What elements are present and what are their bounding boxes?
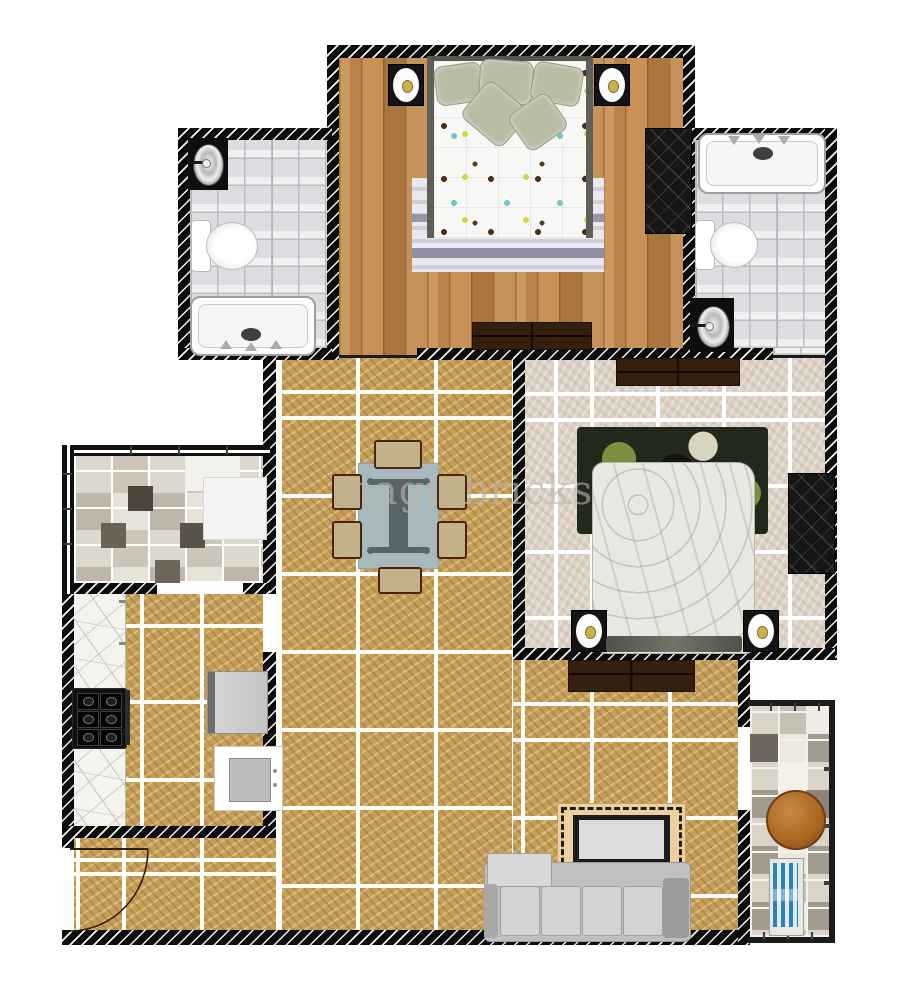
sofa-chaise-back [487,853,552,887]
entrance-door-swing [60,840,160,940]
tub-faucet-handle [728,136,740,145]
dining-chair [374,440,422,469]
tub-faucet-spout [753,135,765,144]
tub-faucet-handle [270,340,282,349]
kitchen-sink-unit [214,746,283,811]
sink-basin [229,758,271,802]
sofa-cushion [500,886,540,936]
balcony-wall-bottom [748,937,835,943]
sink-tap [273,769,277,773]
wall-utility-right [263,348,276,594]
dresser [472,322,592,350]
bedroom2-top-edge [773,355,827,358]
watermark: magicbricks [335,468,593,514]
console-table [616,358,740,386]
tub-faucet-spout [245,342,257,351]
railing-post [794,703,796,711]
bathroom-2-floor-strip [773,348,825,355]
sink-tap [273,783,277,787]
railing-post [824,881,830,885]
wall-bedroom1-left [327,45,339,360]
faucet-dot [705,322,714,331]
window-mullion [63,508,72,510]
dining-chair [378,567,422,594]
toilet-bowl [710,222,758,268]
mosaic-dark-tile [101,523,126,548]
wall-lamp [571,610,607,652]
wall-lamp [743,610,779,652]
tub-drain [241,328,261,341]
wall-utility-bottom-left [62,583,157,594]
mosaic-dark-tile [128,486,153,511]
utility-counter [203,477,267,540]
railing-post [763,932,765,940]
bathtub [190,296,316,356]
wash-basin [188,138,228,190]
refrigerator [207,671,268,734]
sofa-armrest-right [663,878,689,938]
balcony-light-tile [778,762,806,790]
burner [77,729,99,746]
sideboard [568,660,695,692]
railing-post [811,932,813,940]
window-mullion [178,446,180,455]
burner [77,693,99,710]
wash-basin [690,298,734,352]
wall-kitchen-bottom [62,826,276,838]
table-knob [423,547,430,554]
utility-window-top [62,445,270,456]
tub-faucet-handle [220,340,232,349]
burner [100,693,122,710]
toilet-bowl [206,222,258,270]
mosaic-dark-tile [155,560,180,583]
bed-2-quilt [592,462,755,654]
railing-post [770,703,772,711]
railing-post [818,703,820,711]
sofa-armrest-left [484,884,498,938]
sofa-cushion [582,886,622,936]
wall-outer-right [825,128,837,660]
dining-chair [332,521,362,559]
floor-plan: magicbricks [0,0,900,1000]
wall-living-right-upper [738,660,750,727]
wall-living-right-lower [738,810,750,945]
counter-handle [119,642,126,645]
door-swing-arc [70,849,148,931]
sofa-cushion [623,886,663,936]
burner [77,711,99,728]
sofa-cushion [541,886,581,936]
bathtub [698,133,826,194]
round-table [766,790,826,850]
wall-utility-bottom-right [243,583,270,594]
lounge-chair [769,858,804,936]
utility-window-left [62,445,74,594]
dining-chair [437,521,467,559]
wardrobe [788,473,835,574]
balcony-dark-tile [750,734,778,762]
table-knob [367,547,374,554]
counter-handle [119,600,126,603]
tub-drain [753,147,773,160]
wall-lamp [594,64,630,106]
stove-control-strip [125,690,130,745]
window-mullion [63,473,72,475]
balcony-railing-right [829,700,835,943]
bed-2-footboard [606,636,742,652]
window-mullion [130,446,132,455]
rug-center [579,820,664,859]
stove-hob [72,688,127,749]
lounge-highlight [773,889,798,901]
wall-lamp [388,64,424,106]
bedroom1-door-threshold [339,355,417,358]
tub-faucet-handle [778,136,790,145]
table-beam-bottom [369,547,428,553]
window-mullion [63,543,72,545]
wardrobe [645,128,692,234]
balcony-wall-top [748,700,835,706]
burner [100,711,122,728]
railing-post [824,767,830,771]
window-mullion [226,446,228,455]
faucet-dot [202,159,211,168]
burner [100,729,122,746]
mosaic-dark-tile [180,523,205,548]
